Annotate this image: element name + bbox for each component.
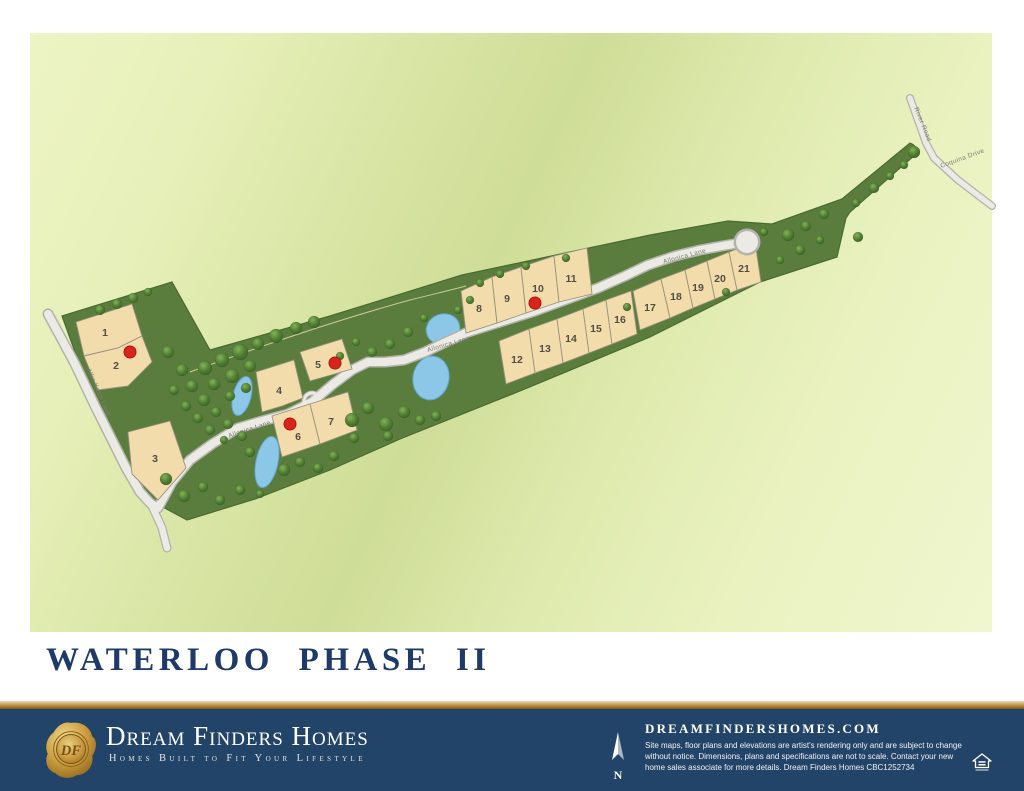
tree-icon xyxy=(232,344,248,360)
tree-icon xyxy=(198,482,208,492)
tree-icon xyxy=(776,256,784,264)
tree-icon xyxy=(160,473,172,485)
tree-icon xyxy=(252,338,264,350)
tree-icon xyxy=(278,464,290,476)
tree-icon xyxy=(223,419,233,429)
lot-number-17: 17 xyxy=(644,302,656,314)
tree-icon xyxy=(186,380,198,392)
tree-icon xyxy=(308,316,320,328)
tree-icon xyxy=(205,425,215,435)
footer-info: DREAMFINDERSHOMES.COM Site maps, floor p… xyxy=(645,721,967,773)
tree-icon xyxy=(290,322,302,334)
tree-icon xyxy=(383,431,393,441)
tree-icon xyxy=(403,327,413,337)
lot-number-20: 20 xyxy=(714,273,726,285)
lot-number-11: 11 xyxy=(565,273,576,285)
disclaimer-text: Site maps, floor plans and elevations ar… xyxy=(645,740,967,773)
lot-number-21: 21 xyxy=(738,263,750,275)
tree-icon xyxy=(900,161,908,169)
available-lot-dot xyxy=(284,418,296,430)
tree-icon xyxy=(431,411,441,421)
tree-icon xyxy=(367,347,377,357)
tree-icon xyxy=(496,270,504,278)
lot-number-10: 10 xyxy=(532,283,544,295)
tree-icon xyxy=(198,394,210,406)
tree-icon xyxy=(244,360,256,372)
lot-number-18: 18 xyxy=(670,291,682,303)
tree-icon xyxy=(256,490,264,498)
tree-icon xyxy=(211,407,221,417)
cul-de-sac xyxy=(734,229,761,256)
tree-icon xyxy=(466,296,474,304)
lot-number-7: 7 xyxy=(328,416,334,428)
lot-number-1: 1 xyxy=(102,327,108,339)
tree-icon xyxy=(220,436,228,444)
tree-icon xyxy=(852,199,860,207)
website-url: DREAMFINDERSHOMES.COM xyxy=(645,721,967,737)
tree-icon xyxy=(349,433,359,443)
lot-number-9: 9 xyxy=(504,293,510,305)
footer-bar: DF Dream Finders Homes Homes Built to Fi… xyxy=(0,709,1024,791)
wax-seal-logo-icon: DF xyxy=(42,718,100,782)
tree-icon xyxy=(345,413,359,427)
lot-number-5: 5 xyxy=(315,359,321,371)
tree-icon xyxy=(782,229,794,241)
tree-icon xyxy=(886,172,894,180)
tree-icon xyxy=(420,314,428,322)
tree-icon xyxy=(623,303,631,311)
tree-icon xyxy=(245,447,255,457)
disclaimer-line: Site maps, floor plans and elevations ar… xyxy=(645,740,967,751)
tree-icon xyxy=(722,288,730,296)
lot-number-6: 6 xyxy=(295,431,301,443)
tree-icon xyxy=(379,417,393,431)
tree-icon xyxy=(313,463,323,473)
disclaimer-line: home sales associate for more details. D… xyxy=(645,762,967,773)
disclaimer-line: without notice. Dimensions, plans and sp… xyxy=(645,751,967,762)
tree-icon xyxy=(476,279,484,287)
tree-icon xyxy=(235,485,245,495)
north-arrow-icon xyxy=(610,731,626,761)
lot-number-12: 12 xyxy=(511,354,523,366)
tree-icon xyxy=(208,378,220,390)
tree-icon xyxy=(176,364,188,376)
lot-number-14: 14 xyxy=(565,333,577,345)
tree-icon xyxy=(816,236,824,244)
equal-housing-icon xyxy=(971,753,993,773)
tree-icon xyxy=(269,329,283,343)
tree-icon xyxy=(128,293,138,303)
street-label: Coquina Drive xyxy=(939,147,985,169)
tree-icon xyxy=(454,306,462,314)
tree-icon xyxy=(178,490,190,502)
tree-icon xyxy=(562,254,570,262)
footer-gold-divider xyxy=(0,701,1024,709)
tree-icon xyxy=(112,299,122,309)
available-lot-dot xyxy=(329,357,341,369)
tree-icon xyxy=(198,361,212,375)
tree-icon xyxy=(241,383,251,393)
tree-icon xyxy=(760,228,768,236)
north-indicator: N xyxy=(606,731,630,783)
tree-icon xyxy=(385,339,395,349)
lot-number-15: 15 xyxy=(590,323,602,335)
tree-icon xyxy=(853,232,863,242)
tree-icon xyxy=(193,413,203,423)
tree-icon xyxy=(352,338,360,346)
lot-number-2: 2 xyxy=(113,360,119,372)
lot-number-3: 3 xyxy=(152,453,158,465)
available-lot-dot xyxy=(124,346,136,358)
tree-icon xyxy=(95,305,105,315)
tree-icon xyxy=(162,346,174,358)
tree-icon xyxy=(295,457,305,467)
tree-icon xyxy=(181,401,191,411)
north-label: N xyxy=(606,768,630,783)
tree-icon xyxy=(362,402,374,414)
tree-icon xyxy=(415,415,425,425)
tree-icon xyxy=(795,245,805,255)
tree-icon xyxy=(215,353,229,367)
tree-icon xyxy=(225,391,235,401)
tree-icon xyxy=(869,183,879,193)
flyer-page: { "title": "WATERLOO PHASE II", "map": {… xyxy=(0,0,1024,791)
tree-icon xyxy=(144,288,152,296)
plan-title: WATERLOO PHASE II xyxy=(46,642,491,679)
tree-icon xyxy=(398,406,410,418)
tree-icon xyxy=(801,221,811,231)
lot-number-8: 8 xyxy=(476,303,482,315)
tree-icon xyxy=(522,262,530,270)
tree-icon xyxy=(908,146,920,158)
tree-icon xyxy=(169,385,179,395)
brand-name: Dream Finders Homes xyxy=(106,721,369,751)
lot-number-4: 4 xyxy=(276,385,282,397)
lot-number-19: 19 xyxy=(692,282,704,294)
lot-number-16: 16 xyxy=(614,314,626,326)
brand-tagline: Homes Built to Fit Your Lifestyle xyxy=(106,753,369,764)
available-lot-dot xyxy=(529,297,541,309)
lot-number-13: 13 xyxy=(539,343,551,355)
tree-icon xyxy=(215,495,225,505)
tree-icon xyxy=(225,369,239,383)
tree-icon xyxy=(819,209,829,219)
brand-block: Dream Finders Homes Homes Built to Fit Y… xyxy=(106,721,369,764)
seal-monogram: DF xyxy=(60,743,81,759)
tree-icon xyxy=(329,451,339,461)
